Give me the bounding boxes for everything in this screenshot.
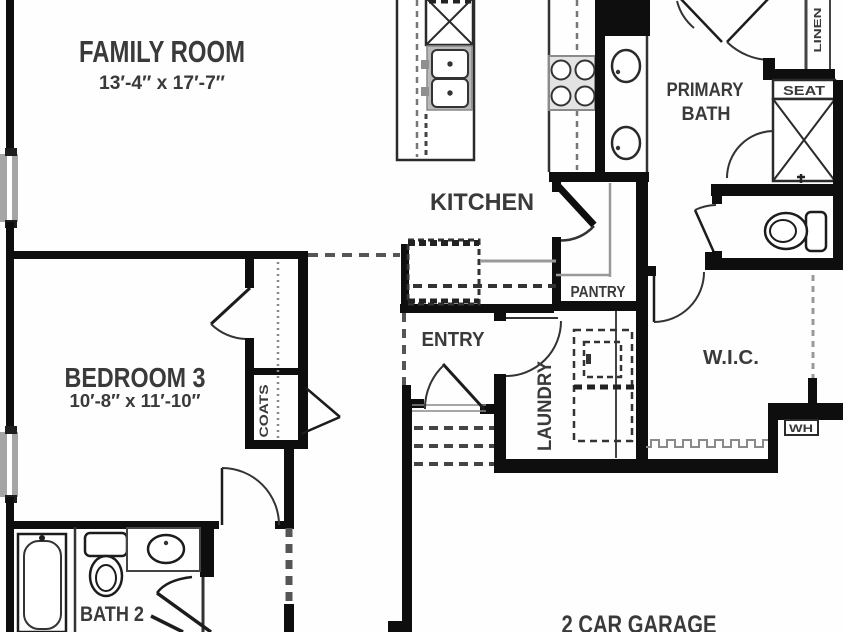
svg-text:2 CAR GARAGE: 2 CAR GARAGE [562, 611, 717, 632]
svg-text:W.I.C.: W.I.C. [703, 347, 759, 369]
svg-text:FAMILY ROOM: FAMILY ROOM [79, 34, 245, 69]
svg-text:10′-8″ x 11′-10″: 10′-8″ x 11′-10″ [70, 391, 201, 411]
svg-text:COATS: COATS [257, 385, 271, 438]
svg-text:13′-4″ x 17′-7″: 13′-4″ x 17′-7″ [99, 73, 225, 94]
svg-text:ENTRY: ENTRY [422, 329, 486, 351]
svg-text:PANTRY: PANTRY [571, 284, 626, 301]
svg-text:BATH: BATH [682, 104, 731, 125]
svg-text:KITCHEN: KITCHEN [430, 189, 534, 216]
svg-text:SEAT: SEAT [783, 83, 825, 98]
svg-text:LINEN: LINEN [812, 8, 824, 53]
svg-text:PRIMARY: PRIMARY [667, 80, 744, 101]
svg-text:BEDROOM 3: BEDROOM 3 [65, 362, 206, 393]
svg-text:WH: WH [789, 423, 813, 435]
svg-text:LAUNDRY: LAUNDRY [535, 361, 556, 451]
svg-text:BATH 2: BATH 2 [80, 603, 144, 626]
